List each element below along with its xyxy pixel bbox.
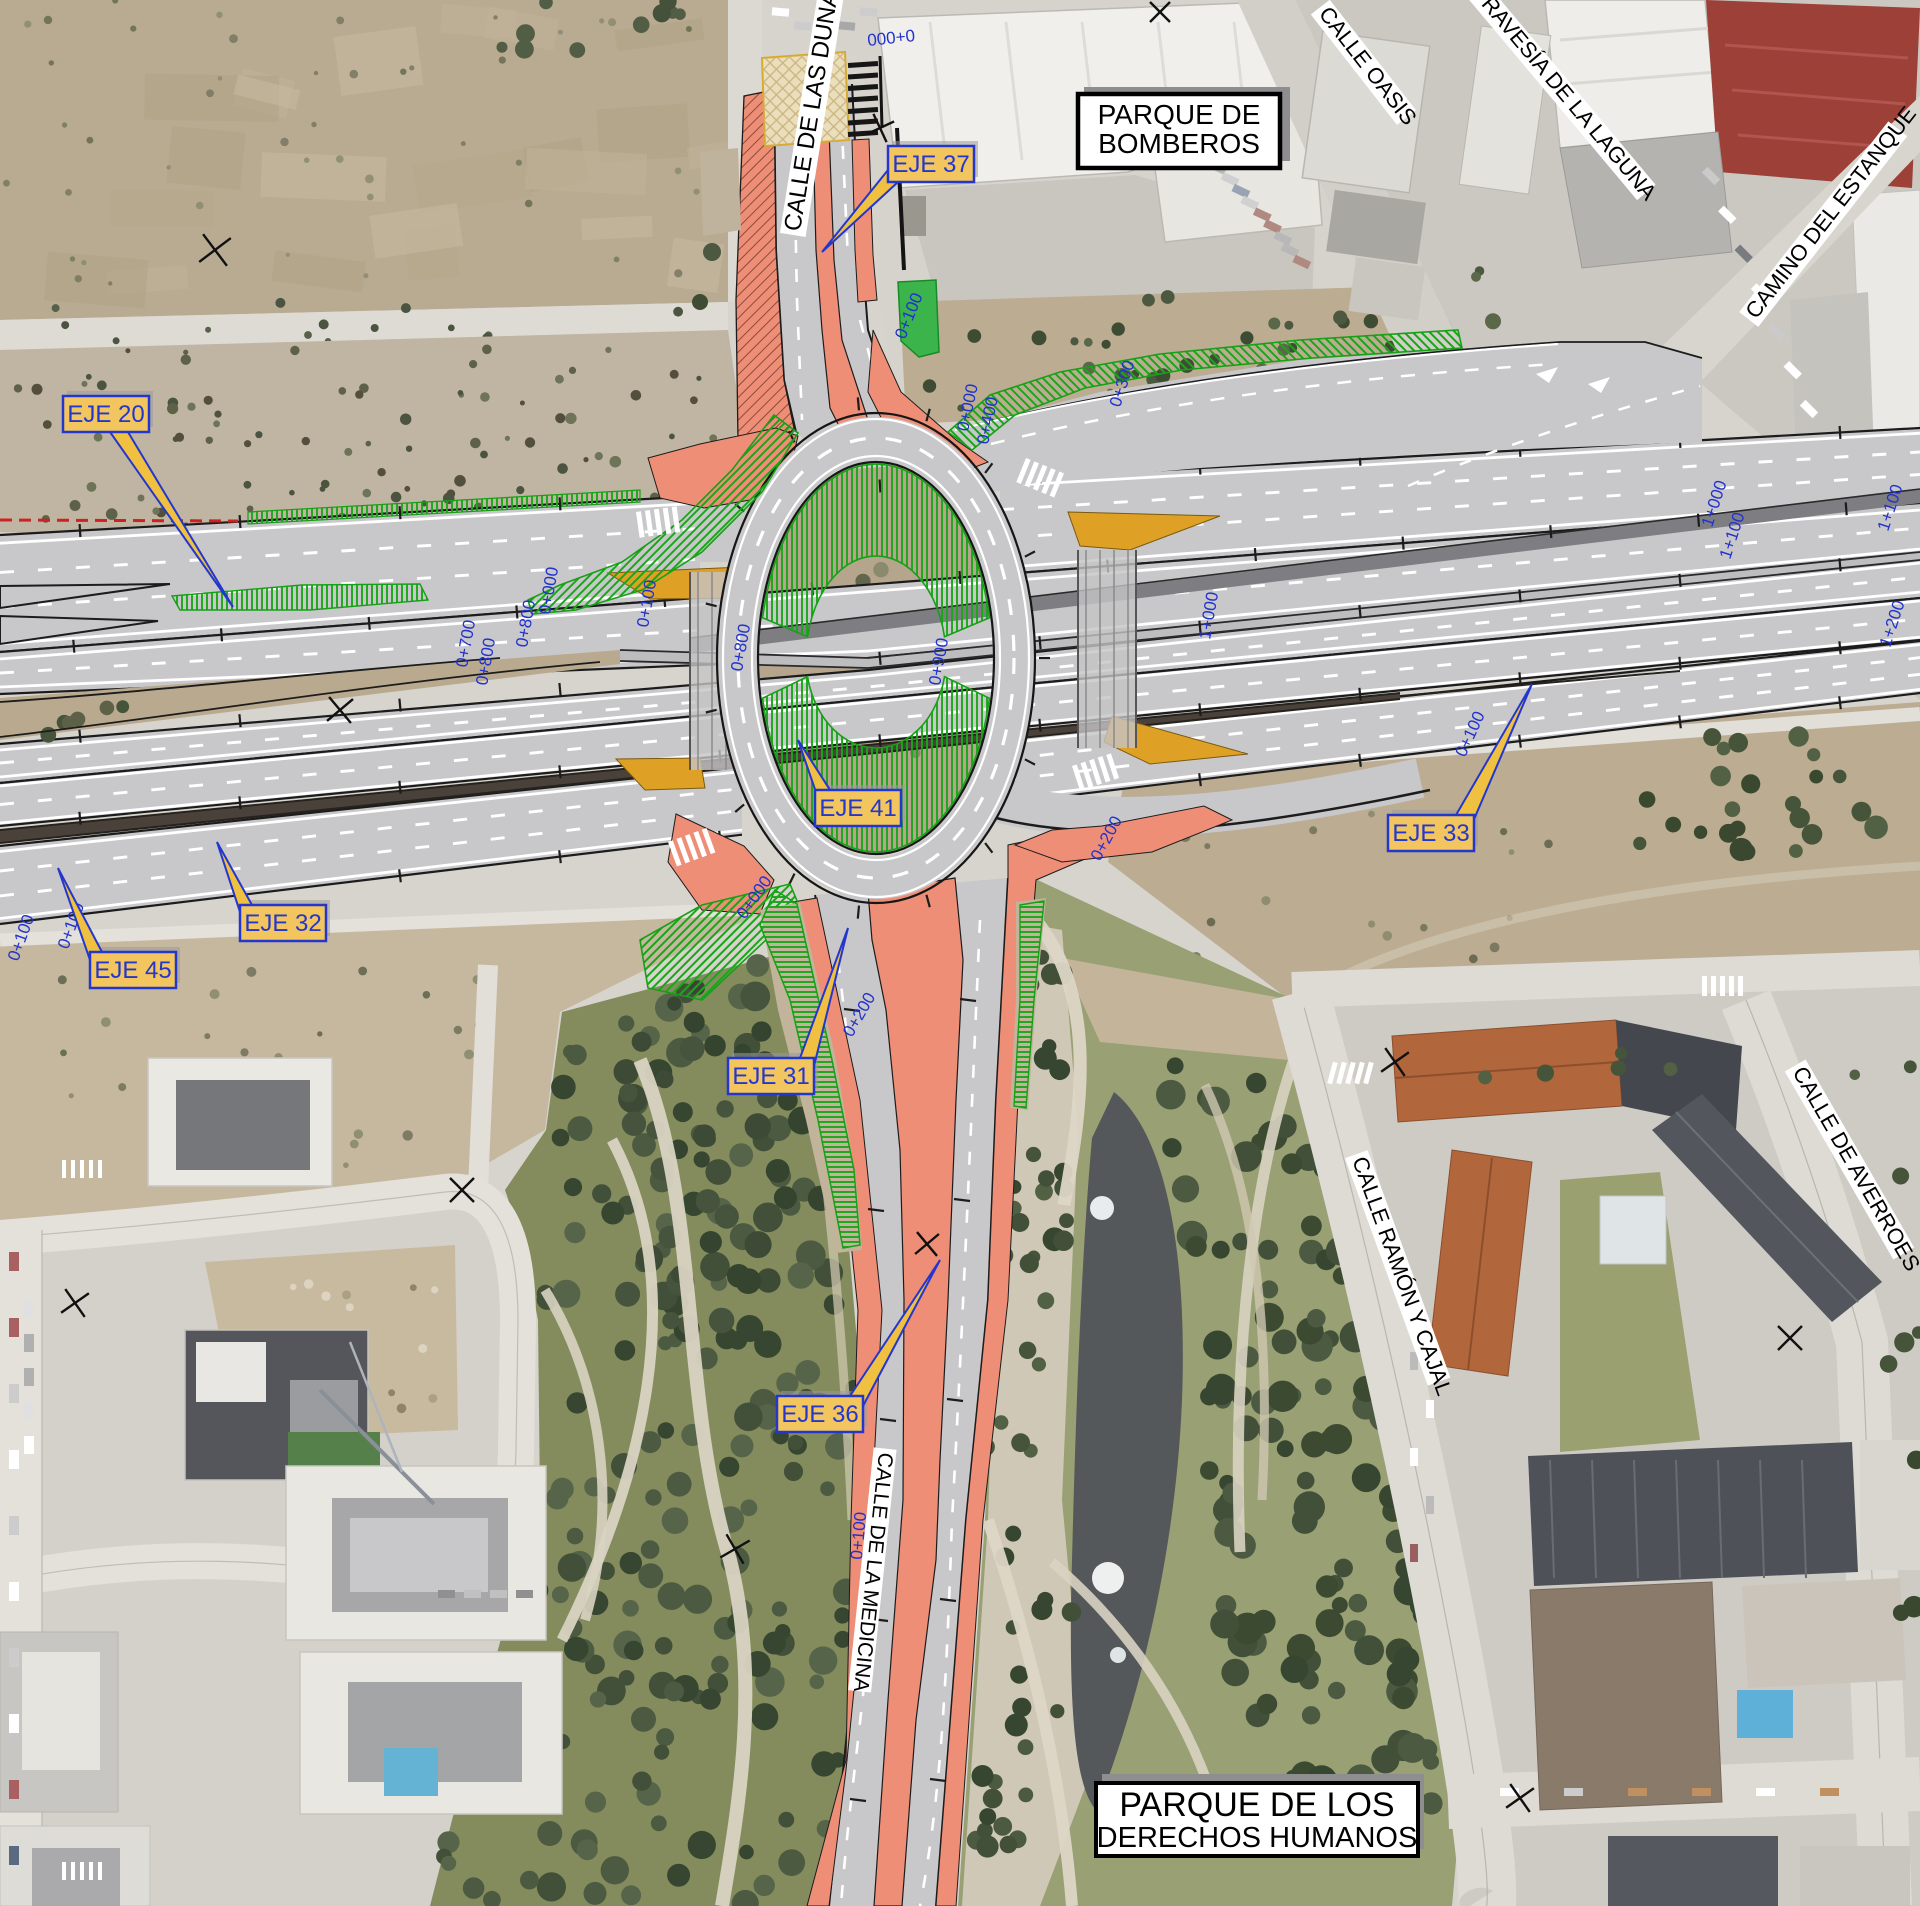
svg-text:EJE 31: EJE 31	[732, 1063, 809, 1090]
svg-text:DERECHOS HUMANOS: DERECHOS HUMANOS	[1097, 1822, 1418, 1854]
svg-text:EJE 20: EJE 20	[67, 401, 144, 428]
svg-text:BOMBEROS: BOMBEROS	[1098, 128, 1260, 159]
svg-text:EJE 36: EJE 36	[781, 1401, 858, 1428]
svg-text:EJE 32: EJE 32	[244, 910, 321, 937]
svg-text:EJE 33: EJE 33	[1392, 820, 1469, 847]
svg-text:EJE 37: EJE 37	[892, 151, 969, 178]
svg-text:EJE 41: EJE 41	[819, 795, 896, 822]
svg-text:PARQUE DE LOS: PARQUE DE LOS	[1119, 1786, 1394, 1824]
svg-text:PARQUE DE: PARQUE DE	[1098, 99, 1261, 130]
svg-text:EJE 45: EJE 45	[94, 957, 171, 984]
